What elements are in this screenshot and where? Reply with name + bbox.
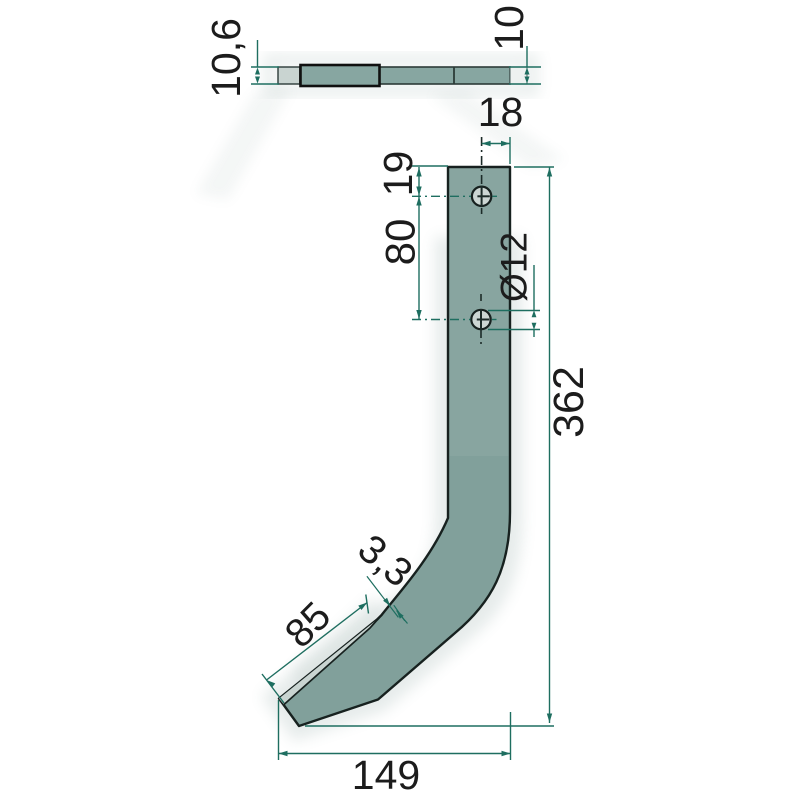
svg-text:Ø12: Ø12 [494, 232, 535, 302]
svg-text:10: 10 [486, 5, 532, 51]
svg-text:80: 80 [377, 219, 424, 266]
svg-text:362: 362 [545, 366, 593, 438]
svg-text:19: 19 [375, 151, 421, 197]
svg-text:18: 18 [478, 89, 524, 135]
svg-text:149: 149 [352, 752, 420, 798]
svg-text:10,6: 10,6 [203, 18, 249, 98]
